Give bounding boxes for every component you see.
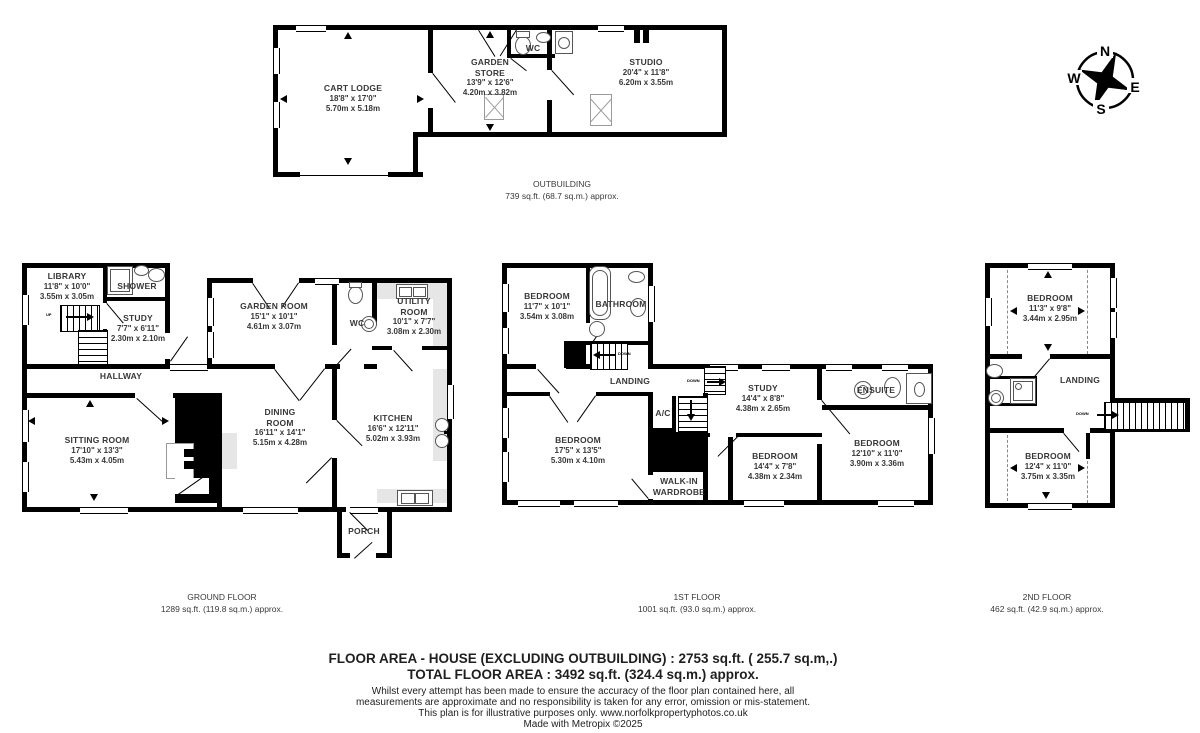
skylight-icon bbox=[590, 94, 612, 126]
room-dims-ft: 11'8" x 10'0" bbox=[17, 282, 117, 292]
stairs-arrow-head bbox=[687, 414, 695, 421]
shower-head-icon bbox=[1015, 383, 1022, 390]
window bbox=[826, 364, 852, 371]
measure-arrow bbox=[28, 417, 35, 425]
room-label-library: LIBRARY11'8" x 10'0"3.55m x 3.05m bbox=[17, 271, 117, 302]
room-label-dining-room: DINING ROOM16'11" x 14'1"5.15m x 4.28m bbox=[250, 407, 310, 448]
room-dims-ft: 11'3" x 9'8" bbox=[1000, 304, 1100, 314]
sink-bowl-icon bbox=[914, 382, 925, 397]
wall bbox=[822, 405, 933, 410]
window bbox=[1028, 263, 1072, 270]
sink-icon bbox=[589, 321, 605, 337]
second-floor-caption: 2ND FLOOR462 sq.ft. (42.9 sq.m.) approx. bbox=[947, 592, 1147, 616]
toilet-icon bbox=[148, 268, 165, 282]
room-dims-ft: 11'7" x 10'1" bbox=[497, 302, 597, 312]
stairs-down-label: DOWN bbox=[687, 379, 700, 384]
wall bbox=[207, 278, 253, 283]
window bbox=[882, 364, 908, 371]
compass-south-label: S bbox=[1096, 101, 1105, 117]
wall bbox=[502, 500, 933, 505]
caption-title: 1ST FLOOR bbox=[597, 592, 797, 604]
sideboard bbox=[222, 433, 237, 469]
room-name: WALK-IN WARDROBE bbox=[648, 476, 710, 497]
room-dims-m: 3.90m x 3.36m bbox=[827, 459, 927, 469]
stairs-arrow-head bbox=[1112, 411, 1119, 419]
stairs-arrow bbox=[66, 316, 88, 318]
room-label-bedroom3: BEDROOM14'4" x 7'8"4.38m x 2.34m bbox=[727, 451, 823, 482]
room-name: PORCH bbox=[338, 526, 390, 537]
room-label-shower: SHOWER bbox=[108, 281, 166, 292]
room-name: BEDROOM bbox=[827, 438, 927, 449]
room-name: SITTING ROOM bbox=[37, 435, 157, 446]
room-name: BATHROOM bbox=[590, 299, 652, 310]
door-leaf bbox=[631, 478, 648, 499]
sink-icon bbox=[988, 390, 1004, 406]
room-name: HALLWAY bbox=[71, 371, 171, 382]
sink-icon bbox=[555, 31, 573, 54]
window bbox=[170, 364, 208, 371]
room-dims-m: 6.20m x 3.55m bbox=[586, 78, 706, 88]
stairs-down-label: DOWN bbox=[1076, 412, 1089, 417]
room-label-utility: UTILITY ROOM10'1" x 7'7"3.08m x 2.30m bbox=[384, 296, 444, 337]
window bbox=[574, 500, 618, 507]
wall bbox=[428, 25, 433, 73]
door-leaf bbox=[306, 457, 332, 483]
measure-arrow bbox=[417, 95, 424, 103]
caption-title: OUTBUILDING bbox=[462, 179, 662, 191]
window bbox=[350, 507, 378, 514]
sink-bowl-icon bbox=[415, 493, 429, 504]
window bbox=[207, 332, 214, 358]
compass-west-label: W bbox=[1067, 70, 1081, 86]
radiator-icon bbox=[634, 30, 640, 43]
room-dims-ft: 12'4" x 11'0" bbox=[998, 462, 1098, 472]
room-label-cart-lodge: CART LODGE18'8" x 17'0"5.70m x 5.18m bbox=[293, 83, 413, 114]
window bbox=[80, 507, 128, 514]
ground-floor-caption: GROUND FLOOR1289 sq.ft. (119.8 sq.m.) ap… bbox=[122, 592, 322, 616]
door-leaf bbox=[336, 349, 351, 366]
toilet-icon bbox=[349, 282, 362, 288]
sink-icon bbox=[397, 490, 433, 506]
caption-area: 1289 sq.ft. (119.8 sq.m.) approx. bbox=[122, 604, 322, 616]
window bbox=[744, 500, 784, 507]
measure-arrow bbox=[1044, 344, 1052, 351]
door-leaf bbox=[274, 369, 299, 401]
sink-bowl-icon bbox=[558, 37, 570, 49]
door-leaf bbox=[300, 368, 325, 400]
floorplan-page: { "colors": {"wall": "#000000", "label_t… bbox=[0, 0, 1200, 733]
stairs-down-label: DOWN bbox=[618, 352, 631, 357]
caption-title: GROUND FLOOR bbox=[122, 592, 322, 604]
room-name: BEDROOM bbox=[1000, 293, 1100, 304]
door-leaf bbox=[549, 396, 568, 423]
room-dims-ft: 14'4" x 7'8" bbox=[727, 462, 823, 472]
room-label-wc: WC bbox=[344, 318, 370, 329]
fireplace-step bbox=[184, 461, 196, 469]
compass-north-label: N bbox=[1100, 43, 1110, 59]
room-label-wardrobe: WALK-IN WARDROBE bbox=[648, 476, 710, 497]
wall bbox=[502, 392, 550, 396]
room-label-bathroom: BATHROOM bbox=[590, 299, 652, 310]
room-dims-m: 3.08m x 2.30m bbox=[384, 327, 444, 337]
fireplace-step bbox=[184, 449, 196, 457]
compass-rose: N W E S bbox=[1063, 36, 1147, 120]
window bbox=[985, 298, 992, 326]
room-name: UTILITY ROOM bbox=[384, 296, 444, 317]
room-name: BEDROOM bbox=[727, 451, 823, 462]
room-label-landing: LANDING bbox=[580, 376, 680, 387]
room-dims-ft: 17'10" x 13'3" bbox=[37, 446, 157, 456]
door-leaf bbox=[432, 73, 456, 103]
credit-line: Made with Metropix ©2025 bbox=[183, 719, 983, 730]
measure-arrow bbox=[344, 32, 352, 39]
wall bbox=[273, 25, 727, 30]
door-leaf bbox=[577, 395, 596, 422]
sink-icon bbox=[628, 271, 645, 283]
room-label-wc: WC bbox=[520, 43, 546, 54]
window bbox=[518, 500, 560, 507]
disclaimer-line: This plan is for illustrative purposes o… bbox=[183, 708, 983, 719]
wall bbox=[547, 25, 552, 70]
compass-east-label: E bbox=[1130, 79, 1139, 95]
room-label-kitchen: KITCHEN16'6" x 12'11"5.02m x 3.93m bbox=[343, 413, 443, 444]
room-name: BEDROOM bbox=[998, 451, 1098, 462]
room-label-landing: LANDING bbox=[1040, 375, 1120, 386]
wall bbox=[1186, 398, 1190, 432]
caption-area: 462 sq.ft. (42.9 sq.m.) approx. bbox=[947, 604, 1147, 616]
room-dims-m: 4.61m x 3.07m bbox=[214, 322, 334, 332]
wall bbox=[428, 108, 433, 137]
room-dims-ft: 7'7" x 6'11" bbox=[88, 324, 188, 334]
disclaimer-line: measurements are approximate and no resp… bbox=[183, 697, 983, 708]
room-dims-m: 5.70m x 5.18m bbox=[293, 104, 413, 114]
room-label-bedroom2: BEDROOM17'5" x 13'5"5.30m x 4.10m bbox=[528, 435, 628, 466]
wall bbox=[502, 263, 653, 268]
room-name: LANDING bbox=[580, 376, 680, 387]
room-label-garden-room: GARDEN ROOM15'1" x 10'1"4.61m x 3.07m bbox=[214, 301, 334, 332]
room-label-garden-store: GARDEN STORE13'9" x 12'6"4.20m x 3.82m bbox=[457, 57, 523, 98]
room-dims-ft: 17'5" x 13'5" bbox=[528, 446, 628, 456]
room-label-bedroom-bottom: BEDROOM12'4" x 11'0"3.75m x 3.35m bbox=[998, 451, 1098, 482]
room-name: BEDROOM bbox=[528, 435, 628, 446]
room-label-bedroom4: BEDROOM12'10" x 11'0"3.90m x 3.36m bbox=[827, 438, 927, 469]
room-dims-m: 5.15m x 4.28m bbox=[250, 438, 310, 448]
stairs-arrow-head bbox=[593, 351, 600, 359]
room-label-bedroom-top: BEDROOM11'3" x 9'8"3.44m x 2.95m bbox=[1000, 293, 1100, 324]
measure-arrow bbox=[344, 158, 352, 165]
room-label-study: STUDY14'4" x 8'8"4.38m x 2.65m bbox=[713, 383, 813, 414]
room-name: WC bbox=[520, 43, 546, 54]
window bbox=[296, 25, 326, 32]
room-dims-m: 4.20m x 3.82m bbox=[457, 88, 523, 98]
caption-area: 739 sq.ft. (68.7 sq.m.) approx. bbox=[462, 191, 662, 203]
measure-arrow bbox=[90, 494, 98, 501]
wall bbox=[413, 132, 418, 177]
first-floor-caption: 1ST FLOOR1001 sq.ft. (93.0 sq.m.) approx… bbox=[597, 592, 797, 616]
sink-bowl-icon bbox=[401, 493, 415, 504]
window bbox=[878, 500, 914, 507]
wall bbox=[332, 458, 337, 507]
room-dims-m: 4.38m x 2.34m bbox=[727, 472, 823, 482]
stairs-arrow bbox=[1097, 414, 1113, 416]
caption-area: 1001 sq.ft. (93.0 sq.m.) approx. bbox=[597, 604, 797, 616]
room-name: BEDROOM bbox=[497, 291, 597, 302]
room-label-bedroom1: BEDROOM11'7" x 10'1"3.54m x 3.08m bbox=[497, 291, 597, 322]
wall bbox=[985, 354, 1022, 359]
room-dims-ft: 13'9" x 12'6" bbox=[457, 78, 523, 88]
room-name: KITCHEN bbox=[343, 413, 443, 424]
room-name: DINING ROOM bbox=[250, 407, 310, 428]
outbuilding-caption: OUTBUILDING739 sq.ft. (68.7 sq.m.) appro… bbox=[462, 179, 662, 203]
window bbox=[502, 408, 509, 438]
room-dims-m: 5.02m x 3.93m bbox=[343, 434, 443, 444]
room-dims-ft: 16'11" x 14'1" bbox=[250, 428, 310, 438]
window bbox=[502, 328, 509, 354]
caption-title: 2ND FLOOR bbox=[947, 592, 1147, 604]
wall bbox=[596, 392, 653, 396]
room-name: GARDEN ROOM bbox=[214, 301, 334, 312]
wall bbox=[413, 132, 727, 137]
toilet-icon bbox=[516, 31, 530, 38]
room-dims-m: 3.44m x 2.95m bbox=[1000, 314, 1100, 324]
window bbox=[762, 364, 790, 371]
room-name: LANDING bbox=[1040, 375, 1120, 386]
measure-arrow bbox=[1042, 492, 1050, 499]
measure-arrow bbox=[280, 95, 287, 103]
window bbox=[22, 462, 29, 492]
wall bbox=[547, 100, 552, 137]
room-name: STUDIO bbox=[586, 57, 706, 68]
door-leaf bbox=[136, 398, 163, 423]
window bbox=[598, 25, 624, 32]
wall bbox=[22, 393, 135, 398]
room-label-porch: PORCH bbox=[338, 526, 390, 537]
room-dims-m: 3.75m x 3.35m bbox=[998, 472, 1098, 482]
room-dims-m: 3.54m x 3.08m bbox=[497, 312, 597, 322]
wall bbox=[364, 364, 377, 369]
compass-icon: N W E S bbox=[1063, 36, 1147, 120]
window bbox=[22, 410, 29, 442]
room-label-ensuite: ENSUITE bbox=[840, 385, 912, 396]
sink-icon bbox=[536, 32, 551, 43]
opening-line bbox=[300, 175, 388, 176]
room-dims-m: 4.38m x 2.65m bbox=[713, 404, 813, 414]
door-leaf bbox=[393, 350, 412, 371]
room-name: A/C bbox=[649, 408, 677, 419]
sink-icon bbox=[134, 265, 149, 276]
toilet-icon bbox=[348, 286, 363, 304]
room-dims-ft: 10'1" x 7'7" bbox=[384, 317, 444, 327]
wall bbox=[722, 25, 727, 137]
room-label-ac: A/C bbox=[649, 408, 677, 419]
total-floor-area: TOTAL FLOOR AREA : 3492 sq.ft. (324.4 sq… bbox=[183, 667, 983, 682]
wall bbox=[372, 346, 392, 350]
measure-arrow bbox=[162, 417, 169, 425]
room-dims-m: 2.30m x 2.10m bbox=[88, 334, 188, 344]
window bbox=[273, 102, 280, 128]
room-label-hallway: HALLWAY bbox=[71, 371, 171, 382]
window bbox=[928, 418, 935, 454]
wall bbox=[736, 433, 822, 437]
measure-arrow bbox=[486, 31, 494, 38]
room-dims-m: 5.43m x 4.05m bbox=[37, 456, 157, 466]
measure-arrow bbox=[1044, 271, 1052, 278]
room-label-sitting-room: SITTING ROOM17'10" x 13'3"5.43m x 4.05m bbox=[37, 435, 157, 466]
door-leaf bbox=[1063, 433, 1079, 452]
room-name: GARDEN STORE bbox=[457, 57, 523, 78]
room-name: CART LODGE bbox=[293, 83, 413, 94]
window bbox=[1110, 278, 1117, 308]
wall bbox=[817, 364, 822, 400]
radiator-icon bbox=[643, 30, 649, 43]
wall bbox=[212, 364, 275, 369]
toilet-icon bbox=[986, 364, 1003, 378]
disclaimer-line: Whilst every attempt has been made to en… bbox=[183, 686, 983, 697]
window bbox=[1110, 312, 1117, 338]
room-dims-m: 3.55m x 3.05m bbox=[17, 292, 117, 302]
room-dims-ft: 18'8" x 17'0" bbox=[293, 94, 413, 104]
sink-bowl-icon bbox=[991, 393, 1001, 403]
room-dims-ft: 20'4" x 11'8" bbox=[586, 68, 706, 78]
window bbox=[273, 48, 280, 74]
wall bbox=[332, 369, 337, 420]
door-leaf bbox=[551, 70, 574, 95]
door-leaf bbox=[537, 369, 559, 393]
measure-arrow bbox=[486, 124, 494, 131]
room-name: SHOWER bbox=[108, 281, 166, 292]
room-label-study: STUDY7'7" x 6'11"2.30m x 2.10m bbox=[88, 313, 188, 344]
wall bbox=[985, 428, 1064, 433]
room-dims-ft: 12'10" x 11'0" bbox=[827, 449, 927, 459]
window bbox=[447, 385, 454, 419]
room-label-studio: STUDIO20'4" x 11'8"6.20m x 3.55m bbox=[586, 57, 706, 88]
room-dims-m: 5.30m x 4.10m bbox=[528, 456, 628, 466]
room-name: STUDY bbox=[88, 313, 188, 324]
stairs-up-label: UP bbox=[46, 313, 52, 318]
measure-arrow bbox=[86, 400, 94, 407]
wall bbox=[502, 364, 536, 369]
shower-icon bbox=[1010, 378, 1036, 404]
hob-icon bbox=[444, 431, 447, 434]
room-dims-ft: 15'1" x 10'1" bbox=[214, 312, 334, 322]
window bbox=[207, 298, 214, 326]
room-name: STUDY bbox=[713, 383, 813, 394]
wall bbox=[564, 341, 586, 368]
wall bbox=[703, 433, 710, 437]
room-name: LIBRARY bbox=[17, 271, 117, 282]
room-name: ENSUITE bbox=[840, 385, 912, 396]
wall bbox=[1050, 354, 1115, 359]
window bbox=[1028, 503, 1072, 510]
window bbox=[243, 507, 298, 514]
house-floor-area: FLOOR AREA - HOUSE (EXCLUDING OUTBUILDIN… bbox=[183, 651, 983, 666]
wall bbox=[648, 499, 653, 505]
window bbox=[502, 452, 509, 482]
room-dims-ft: 16'6" x 12'11" bbox=[343, 424, 443, 434]
window bbox=[315, 278, 339, 285]
room-dims-ft: 14'4" x 8'8" bbox=[713, 394, 813, 404]
room-name: WC bbox=[344, 318, 370, 329]
wall bbox=[648, 432, 708, 472]
